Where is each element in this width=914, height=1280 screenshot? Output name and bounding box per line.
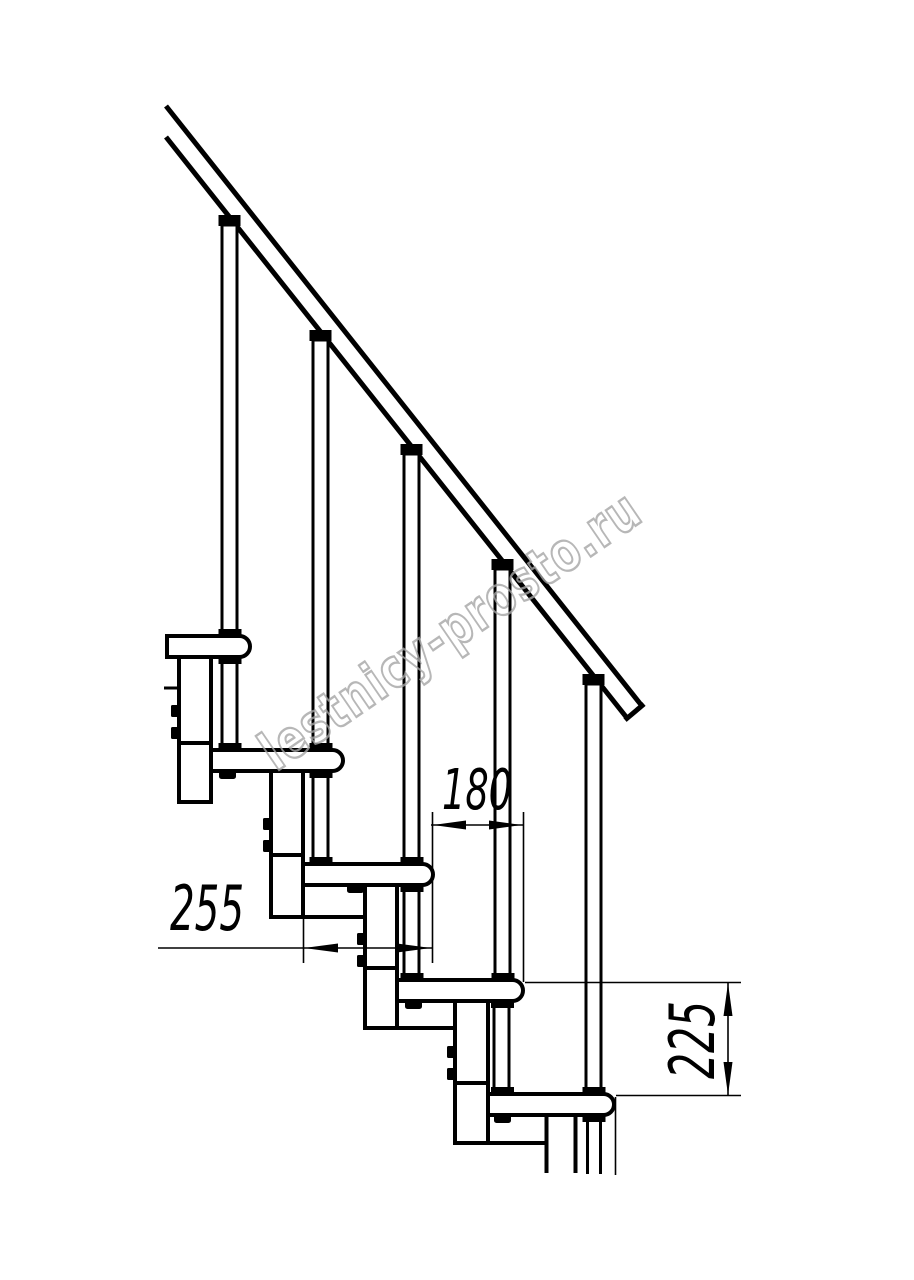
post-5-cut: [588, 1115, 601, 1174]
bolt-icon: [405, 999, 422, 1009]
dimension-label-180: 180: [442, 758, 512, 823]
post-1-2: [222, 657, 237, 750]
bolt-icon: [263, 818, 272, 830]
post-4-5: [494, 1001, 509, 1094]
bolt-icon: [447, 1068, 456, 1080]
bolt-icon: [171, 705, 180, 717]
tread-4: [397, 980, 523, 1001]
tread-3: [303, 864, 433, 885]
bolt-icon: [171, 727, 180, 739]
arrow-left-icon: [304, 944, 338, 953]
baluster-1: [222, 225, 237, 636]
bolt-icon: [263, 840, 272, 852]
post-2-3: [313, 771, 328, 864]
tread-1: [167, 636, 250, 657]
bolt-icon: [357, 933, 366, 945]
column-5-cut: [547, 1115, 576, 1173]
staircase-technical-drawing: 180 255 225 lestnicy-prosto.ru: [0, 0, 914, 1280]
tread-5: [488, 1094, 614, 1115]
bolt-icon: [219, 769, 236, 779]
dimension-label-225: 225: [656, 1001, 729, 1079]
post-3-4: [404, 885, 419, 980]
drawing-canvas: 180 255 225 lestnicy-prosto.ru: [0, 0, 914, 1280]
bolt-icon: [357, 955, 366, 967]
bolt-icon: [347, 883, 364, 893]
dimension-label-255: 255: [170, 872, 244, 945]
handrail-end-cap: [625, 704, 644, 720]
bolt-icon: [494, 1113, 511, 1123]
baluster-5: [586, 684, 601, 1094]
bolt-icon: [447, 1046, 456, 1058]
